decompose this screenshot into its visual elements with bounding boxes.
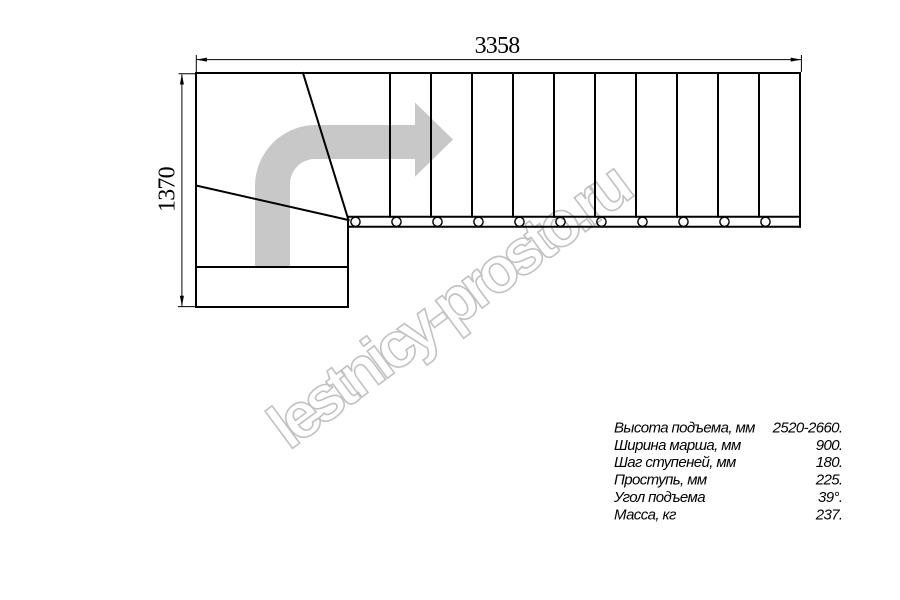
svg-text:3358: 3358: [475, 33, 521, 59]
svg-text:225.: 225.: [815, 472, 843, 489]
svg-text:Угол подъема: Угол подъема: [613, 489, 705, 506]
svg-text:237.: 237.: [815, 506, 843, 523]
svg-text:Шаг ступеней, мм: Шаг ступеней, мм: [614, 454, 736, 471]
svg-text:2520-2660.: 2520-2660.: [772, 419, 843, 436]
svg-text:Высота подъема, мм: Высота подъема, мм: [614, 419, 755, 436]
svg-text:39°.: 39°.: [818, 489, 842, 506]
svg-text:Проступь, мм: Проступь, мм: [614, 472, 707, 489]
svg-text:900.: 900.: [816, 437, 843, 454]
svg-text:180.: 180.: [816, 454, 843, 471]
svg-text:Масса, кг: Масса, кг: [614, 506, 677, 523]
svg-text:1370: 1370: [155, 166, 181, 212]
svg-text:Ширина марша, мм: Ширина марша, мм: [614, 437, 741, 454]
